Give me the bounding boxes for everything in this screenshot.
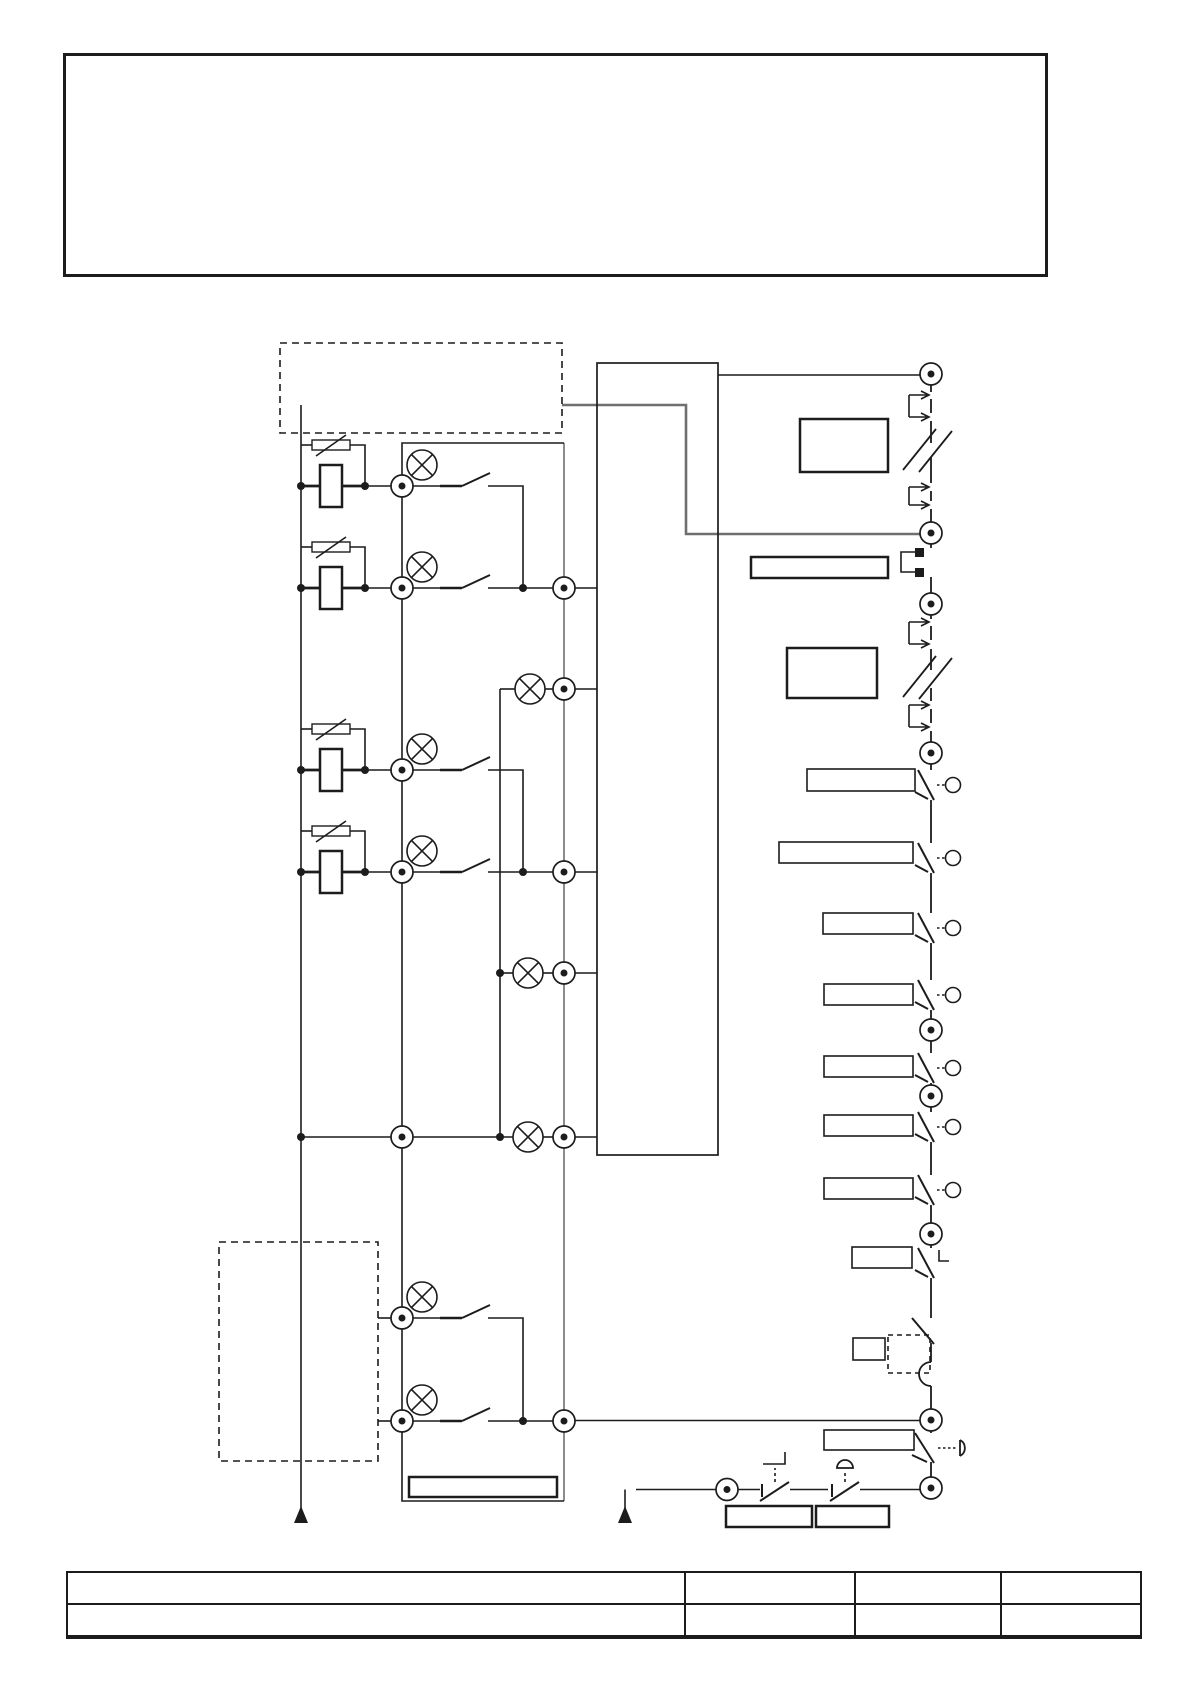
sensor-bus-wires (562, 405, 920, 1501)
switch-contact-icon (462, 575, 490, 588)
bracket-actuator-icon (939, 1250, 949, 1261)
title-block-cell (1002, 1605, 1140, 1635)
wiring-diagram (0, 0, 1191, 1684)
actuator-icon (946, 851, 961, 866)
title-block-cell (856, 1573, 1002, 1603)
rail-switch-4 (824, 980, 961, 1010)
lamp-column-label-box (409, 1477, 557, 1497)
controller-box (597, 363, 718, 1155)
sensor-channel-2 (378, 1385, 920, 1421)
switch-label-box (824, 1178, 913, 1199)
rail-switch-5 (824, 1053, 961, 1083)
cable-break-icon (903, 429, 952, 699)
relay-coil (320, 567, 342, 609)
switch-label-box (852, 1247, 912, 1268)
rail-switch-8 (852, 1247, 949, 1278)
title-block (66, 1571, 1142, 1639)
title-block-cell (686, 1605, 856, 1635)
title-block-row (68, 1605, 1140, 1635)
rail-switch-3 (823, 913, 961, 943)
title-block-cell (686, 1573, 856, 1603)
lamp-row-2 (500, 958, 597, 988)
switch-contact-icon (462, 473, 490, 486)
switch-label-box (824, 984, 913, 1005)
rail-switch-1 (807, 769, 961, 800)
relay-channel-4 (301, 821, 597, 893)
junction-dots (294, 371, 935, 1524)
actuator-icon (946, 778, 961, 793)
connector-square-icon (915, 548, 924, 557)
rail-switch-7 (824, 1175, 961, 1205)
relay-channel-2 (301, 537, 597, 609)
dashed-enclosure (888, 1335, 930, 1373)
title-block-row (68, 1573, 1140, 1605)
switch-label-box (824, 1056, 913, 1077)
title-block-cell (68, 1605, 686, 1635)
switch-label-box (824, 1115, 913, 1136)
switch-label-box (824, 1430, 914, 1450)
switch-contact-icon (912, 1318, 934, 1344)
up-arrow-icon (294, 1506, 308, 1523)
sensor-wire (562, 405, 920, 534)
switch-label-box (823, 913, 913, 934)
switch-label-box (779, 842, 913, 863)
bottom-button-chain (625, 1452, 920, 1513)
switch-label-box (853, 1338, 885, 1360)
schematic-page (0, 0, 1191, 1684)
dashed-unit-bottom (219, 1242, 378, 1461)
component-box-3 (787, 648, 877, 698)
rail-switch-6 (824, 1112, 961, 1142)
switch-contact-icon (462, 757, 490, 770)
connector-square-icon (915, 568, 924, 577)
button-label-box-1 (726, 1506, 812, 1527)
relay-coil (320, 749, 342, 791)
relay-coil (320, 465, 342, 507)
lamp-row-1 (500, 674, 597, 704)
component-box-1 (800, 419, 888, 472)
rail-switch-10 (824, 1430, 965, 1463)
actuator-icon (946, 1061, 961, 1076)
terminal-block-connector-icon (901, 552, 915, 572)
actuator-icon (946, 988, 961, 1003)
component-box-2 (751, 557, 888, 578)
dashed-unit-top (280, 343, 562, 433)
rail-switch-9 (853, 1318, 934, 1386)
switch-contact-icon (462, 1305, 490, 1318)
key-actuator-icon (763, 1452, 785, 1464)
switch-contact-icon (462, 1408, 490, 1421)
mushroom-head-icon (960, 1440, 965, 1456)
sensor-channel-1 (378, 1282, 523, 1421)
mushroom-dome-icon (837, 1460, 853, 1468)
circuit-lines (219, 343, 965, 1527)
actuator-icon (946, 1120, 961, 1135)
actuator-icon (946, 1183, 961, 1198)
button-label-box-2 (816, 1506, 889, 1527)
switch-label-box (807, 769, 915, 791)
switch-contact-icon (462, 859, 490, 872)
up-arrow-icon (618, 1506, 632, 1523)
title-block-cell (1002, 1573, 1140, 1603)
relay-coil (320, 851, 342, 893)
rail-switch-2 (779, 842, 961, 873)
actuator-icon (946, 921, 961, 936)
title-block-cell (856, 1605, 1002, 1635)
title-block-cell (68, 1573, 686, 1603)
